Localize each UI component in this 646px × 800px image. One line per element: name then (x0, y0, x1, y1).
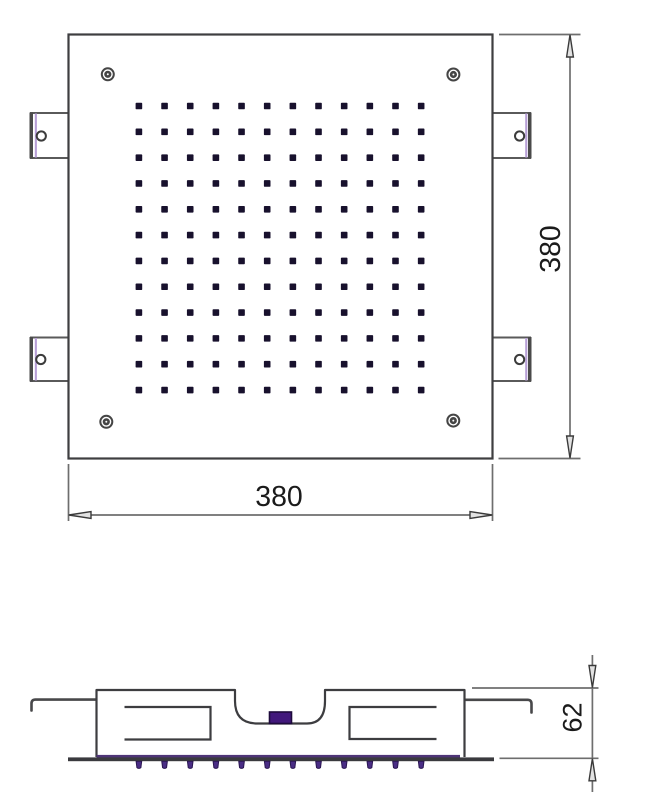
svg-text:62: 62 (558, 702, 588, 732)
svg-text:380: 380 (535, 225, 567, 273)
svg-text:380: 380 (255, 481, 303, 513)
